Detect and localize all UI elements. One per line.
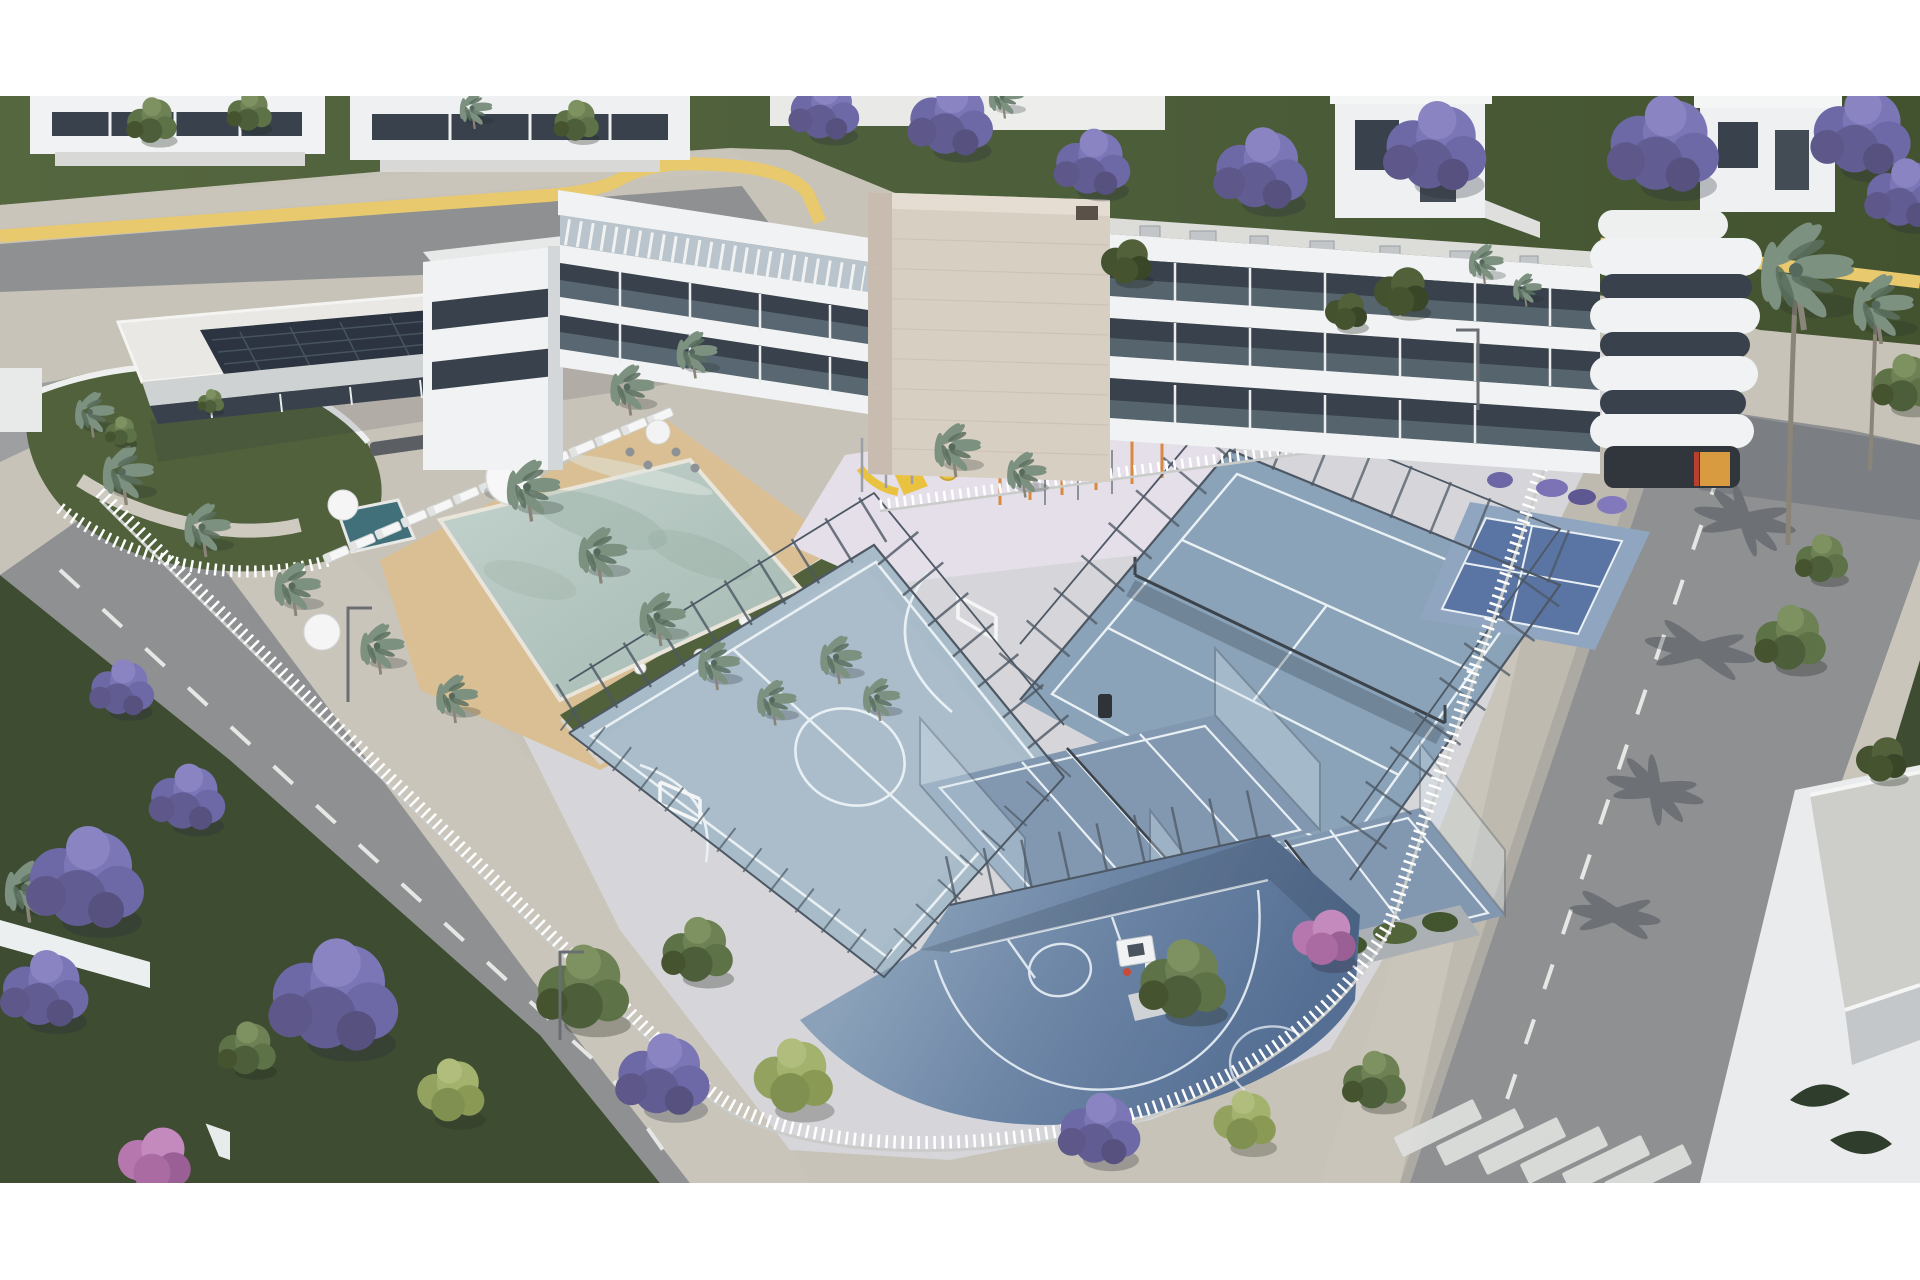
- top-margin: [0, 0, 1920, 96]
- right-wing: [1110, 218, 1600, 474]
- west-corner-block: [423, 236, 578, 470]
- rendered-scene: [0, 0, 1920, 1280]
- stone-tower: [868, 192, 1110, 482]
- garden-wall-west: [0, 368, 42, 432]
- bottom-margin: [0, 1183, 1920, 1280]
- tower-recess: [1076, 206, 1098, 220]
- trash-bin: [1098, 694, 1112, 718]
- aerial-render-image: [0, 0, 1920, 1280]
- corner-retail-light: [1700, 452, 1730, 486]
